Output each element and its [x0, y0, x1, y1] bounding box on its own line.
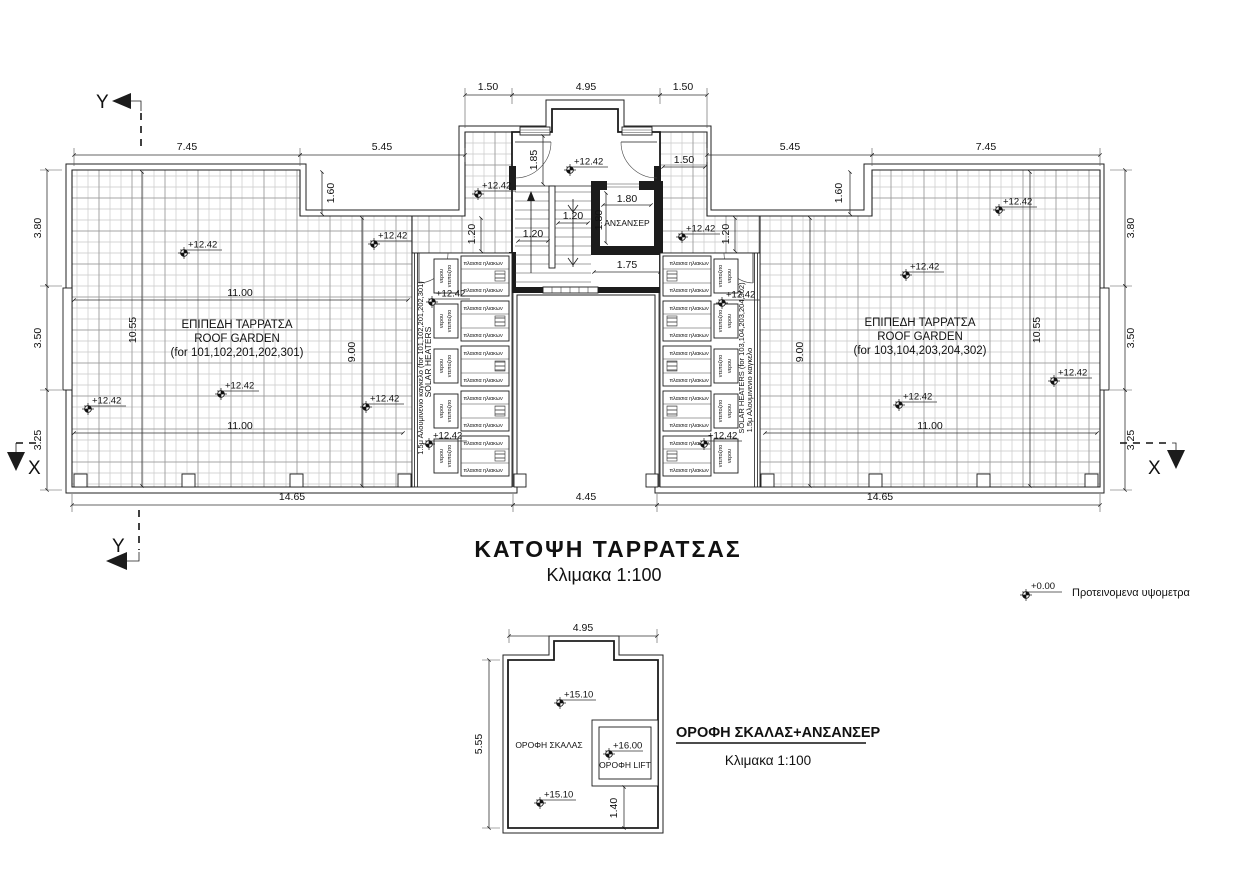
left-walkway [412, 132, 512, 253]
dimension-label: 1.85 [528, 150, 540, 171]
svg-text:πλαισια ηλιακων: πλαισια ηλιακων [463, 468, 503, 474]
detail-title: ΟΡΟΦΗ ΣΚΑΛΑΣ+ΑΝΣΑΝΣΕΡ [676, 725, 881, 741]
svg-text:πλαισια ηλιακων: πλαισια ηλιακων [463, 423, 503, 429]
svg-text:νερου: νερου [439, 269, 445, 283]
axis-label: X [28, 458, 41, 479]
elevator-shaft: ΑΝΣΑΝΣΕΡ 1.80 1.80 [591, 181, 663, 255]
left-slab-edge [63, 288, 72, 390]
axis-arrow-icon [7, 452, 25, 471]
elevation-legend: +0.00 Προτεινομενα υψομετρα [1020, 581, 1190, 601]
svg-text:ντεποζιτο: ντεποζιτο [718, 400, 724, 422]
dimension-label: 1.80 [617, 193, 638, 205]
svg-text:ντεποζιτο: ντεποζιτο [447, 310, 453, 332]
svg-text:+12.42: +12.42 [686, 224, 715, 235]
dimension-label: 14.65 [867, 491, 893, 503]
lift-shaft-roof: ΟΡΟΦΗ LIFT +16.00 [592, 720, 658, 786]
svg-text:νερου: νερου [439, 359, 445, 373]
dimension-label: 3.25 [32, 430, 44, 451]
railing-label: 1.5μ Αλουμινενιο καγκελο [745, 348, 754, 433]
svg-text:πλαισια ηλιακων: πλαισια ηλιακων [669, 378, 709, 384]
lift-roof-label: ΟΡΟΦΗ LIFT [599, 760, 651, 770]
svg-text:+12.42: +12.42 [378, 231, 407, 242]
svg-text:(for 103,104,203,204,302): (for 103,104,203,204,302) [854, 345, 987, 357]
svg-text:πλαισια ηλιακων: πλαισια ηλιακων [669, 261, 709, 267]
svg-text:ντεποζιτο: ντεποζιτο [447, 265, 453, 287]
svg-text:πλαισια ηλιακων: πλαισια ηλιακων [669, 396, 709, 402]
svg-text:+12.42: +12.42 [225, 381, 254, 392]
svg-text:νερου: νερου [727, 269, 733, 283]
svg-text:νερου: νερου [727, 404, 733, 418]
svg-text:πλαισια ηλιακων: πλαισια ηλιακων [463, 396, 503, 402]
elevator-label: ΑΝΣΑΝΣΕΡ [604, 218, 650, 228]
svg-text:+12.42: +12.42 [1003, 197, 1032, 208]
dimension-label: 1.80 [593, 210, 605, 231]
svg-text:πλαισια ηλιακων: πλαισια ηλιακων [669, 306, 709, 312]
drawing-scale: Κλιμακα 1:100 [546, 565, 661, 585]
svg-text:ΕΠΙΠΕΔΗ ΤΑΡΡΑΤΣΑ: ΕΠΙΠΕΔΗ ΤΑΡΡΑΤΣΑ [864, 317, 975, 329]
svg-text:νερου: νερου [727, 359, 733, 373]
drawing-title: ΚΑΤΟΨΗ ΤΑΡΡΑΤΣΑΣ [474, 536, 741, 562]
axis-arrow-icon [112, 93, 131, 109]
svg-text:πλαισια ηλιακων: πλαισια ηλιακων [669, 423, 709, 429]
dimension-label: 1.75 [617, 259, 638, 271]
svg-text:πλαισια ηλιακων: πλαισια ηλιακων [463, 288, 503, 294]
dimension-label: 1.50 [674, 154, 695, 166]
dimension-label: 9.00 [794, 342, 806, 363]
dimension-label: 1.20 [523, 228, 544, 240]
svg-text:(for 101,102,201,202,301): (for 101,102,201,202,301) [171, 347, 304, 359]
dimensions-bottom: 14.65 4.45 14.65 [72, 491, 1100, 512]
svg-text:+12.42: +12.42 [188, 240, 217, 251]
dimension-label: 1.20 [563, 210, 584, 222]
floor-plan-drawing: ΑΝΣΑΝΣΕΡ 1.80 1.80 1.85 1.20 1.20 1.75 1… [0, 0, 1240, 870]
svg-text:ντεποζιτο: ντεποζιτο [447, 400, 453, 422]
axis-arrow-icon [1167, 450, 1185, 469]
dimension-label: 11.00 [917, 420, 943, 432]
svg-text:+12.42: +12.42 [708, 431, 737, 442]
dimension-label: 1.60 [325, 183, 337, 204]
svg-text:νερου: νερου [439, 404, 445, 418]
legend-label: Προτεινομενα υψομετρα [1072, 587, 1190, 599]
dimension-label: 11.00 [227, 287, 253, 299]
svg-text:+15.10: +15.10 [564, 690, 593, 701]
dimension-label: 1.20 [720, 224, 732, 245]
svg-text:+12.42: +12.42 [482, 181, 511, 192]
svg-text:ντεποζιτο: ντεποζιτο [718, 265, 724, 287]
dimension-label: 9.00 [346, 342, 358, 363]
svg-text:ντεποζιτο: ντεποζιτο [447, 445, 453, 467]
dimension-label: 14.65 [279, 491, 305, 503]
dimension-label: 5.45 [780, 141, 801, 153]
solar-panel-unit: πλαισια ηλιακων πλαισια ηλιακων πλαισια … [461, 256, 509, 476]
dimension-label: 1.20 [466, 224, 478, 245]
svg-text:+12.42: +12.42 [574, 157, 603, 168]
axis-label: Y [112, 536, 125, 557]
dimension-label: 4.95 [576, 81, 597, 93]
svg-text:πλαισια ηλιακων: πλαισια ηλιακων [463, 351, 503, 357]
svg-text:ντεποζιτο: ντεποζιτο [718, 355, 724, 377]
dimension-label: 1.50 [478, 81, 499, 93]
dimension-label: 5.45 [372, 141, 393, 153]
architectural-drawing-page: ΑΝΣΑΝΣΕΡ 1.80 1.80 1.85 1.20 1.20 1.75 1… [0, 0, 1240, 870]
svg-text:πλαισια ηλιακων: πλαισια ηλιακων [669, 288, 709, 294]
detail-plan: ΟΡΟΦΗ LIFT +16.00 ΟΡΟΦΗ ΣΚΑΛΑΣ +15.10 +1… [473, 622, 881, 833]
svg-text:νερου: νερου [727, 449, 733, 463]
dimensions-left-side: 3.80 3.50 3.25 [32, 170, 62, 490]
svg-text:ΕΠΙΠΕΔΗ ΤΑΡΡΑΤΣΑ: ΕΠΙΠΕΔΗ ΤΑΡΡΑΤΣΑ [181, 319, 292, 331]
svg-text:+12.42: +12.42 [370, 394, 399, 405]
svg-text:ROOF GARDEN: ROOF GARDEN [877, 331, 963, 343]
svg-text:ντεποζιτο: ντεποζιτο [447, 355, 453, 377]
right-slab-edge [1100, 288, 1109, 390]
legend-elevation: +0.00 [1031, 581, 1055, 592]
dimension-label: 5.55 [473, 734, 485, 755]
dimension-label: 3.25 [1125, 430, 1137, 451]
svg-text:+12.42: +12.42 [433, 431, 462, 442]
svg-text:+12.42: +12.42 [726, 290, 755, 301]
svg-text:ντεποζιτο: ντεποζιτο [718, 445, 724, 467]
stair-roof-label: ΟΡΟΦΗ ΣΚΑΛΑΣ [515, 740, 582, 750]
axis-label: Y [96, 92, 109, 113]
axis-marker-y-top: Y [96, 92, 141, 152]
svg-text:+12.42: +12.42 [436, 289, 465, 300]
dimension-label: 3.80 [32, 218, 44, 239]
solar-heaters-label: SOLAR HEATERS [423, 326, 433, 397]
svg-text:πλαισια ηλιακων: πλαισια ηλιακων [463, 333, 503, 339]
svg-text:+16.00: +16.00 [613, 741, 642, 752]
svg-text:πλαισια ηλιακων: πλαισια ηλιακων [463, 441, 503, 447]
svg-text:+12.42: +12.42 [1058, 368, 1087, 379]
dimension-label: 4.45 [576, 491, 597, 503]
svg-text:πλαισια ηλιακων: πλαισια ηλιακων [463, 261, 503, 267]
dimension-label: 1.60 [833, 183, 845, 204]
dimension-label: 7.45 [976, 141, 997, 153]
svg-text:νερου: νερου [727, 314, 733, 328]
stair-core: ΑΝΣΑΝΣΕΡ 1.80 1.80 1.85 1.20 1.20 1.75 [509, 109, 663, 293]
svg-text:πλαισια ηλιακων: πλαισια ηλιακων [669, 333, 709, 339]
dimension-label: 10.55 [1031, 317, 1043, 343]
svg-text:πλαισια ηλιακων: πλαισια ηλιακων [669, 468, 709, 474]
detail-scale: Κλιμακα 1:100 [725, 753, 811, 768]
svg-text:ντεποζιτο: ντεποζιτο [718, 310, 724, 332]
dimension-label: 3.50 [32, 328, 44, 349]
dimension-label: 4.95 [573, 622, 594, 634]
svg-text:πλαισια ηλιακων: πλαισια ηλιακων [463, 378, 503, 384]
svg-text:+12.42: +12.42 [910, 262, 939, 273]
dimension-label: 7.45 [177, 141, 198, 153]
dimension-label: 1.50 [673, 81, 694, 93]
svg-text:ROOF GARDEN: ROOF GARDEN [194, 333, 280, 345]
dimension-label: 11.00 [227, 420, 253, 432]
svg-text:νερου: νερου [439, 449, 445, 463]
axis-label: X [1148, 458, 1161, 479]
dimension-label: 3.50 [1125, 328, 1137, 349]
svg-text:+12.42: +12.42 [92, 396, 121, 407]
svg-text:πλαισια ηλιακων: πλαισια ηλιακων [463, 306, 503, 312]
dimension-label: 1.40 [608, 798, 620, 819]
dimensions-right-side: 3.80 3.50 3.25 [1110, 170, 1137, 490]
dimension-label: 3.80 [1125, 218, 1137, 239]
svg-text:νερου: νερου [439, 314, 445, 328]
svg-text:πλαισια ηλιακων: πλαισια ηλιακων [669, 351, 709, 357]
svg-text:+12.42: +12.42 [903, 392, 932, 403]
axis-marker-y-bottom: Y [106, 510, 139, 570]
svg-text:+15.10: +15.10 [544, 790, 573, 801]
dimension-label: 10.55 [127, 317, 139, 343]
right-walkway [660, 132, 760, 253]
